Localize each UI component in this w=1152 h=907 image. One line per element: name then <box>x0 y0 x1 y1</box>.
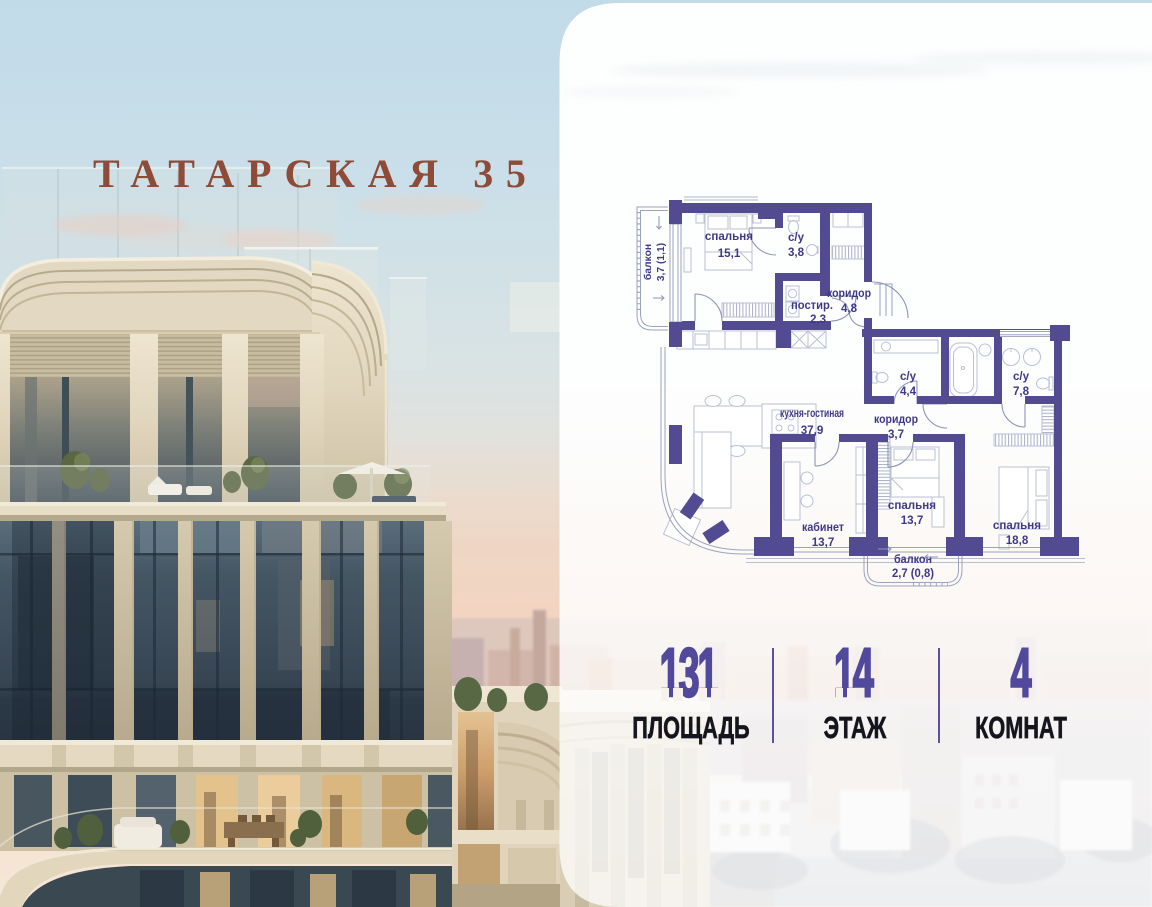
svg-text:спальня: спальня <box>705 230 753 243</box>
svg-text:3,7: 3,7 <box>888 428 904 441</box>
svg-text:18,8: 18,8 <box>1006 534 1029 547</box>
svg-text:балкон: балкон <box>642 244 654 280</box>
svg-text:2,3: 2,3 <box>810 313 827 326</box>
svg-text:с/у: с/у <box>900 370 917 383</box>
svg-text:3,7 (1,1): 3,7 (1,1) <box>656 243 667 281</box>
svg-text:спальня: спальня <box>888 499 936 512</box>
svg-text:13,7: 13,7 <box>812 536 835 549</box>
svg-text:с/у: с/у <box>788 231 805 244</box>
svg-text:13,7: 13,7 <box>901 514 924 527</box>
svg-text:спальня: спальня <box>993 519 1041 532</box>
svg-text:4,8: 4,8 <box>841 302 858 315</box>
svg-text:2,7 (0,8): 2,7 (0,8) <box>892 567 934 580</box>
svg-text:4,4: 4,4 <box>900 385 917 398</box>
svg-text:балкон: балкон <box>894 553 932 566</box>
svg-text:с/у: с/у <box>1013 370 1030 383</box>
svg-text:37,9: 37,9 <box>801 424 824 437</box>
svg-text:коридор: коридор <box>874 413 918 426</box>
svg-text:15,1: 15,1 <box>718 247 741 260</box>
svg-text:кабинет: кабинет <box>802 521 844 534</box>
svg-text:коридор: коридор <box>827 287 871 300</box>
svg-text:кухня-гостиная: кухня-гостиная <box>780 407 844 420</box>
svg-text:3,8: 3,8 <box>788 246 805 259</box>
svg-text:7,8: 7,8 <box>1013 385 1030 398</box>
svg-text:постир.: постир. <box>791 299 833 312</box>
